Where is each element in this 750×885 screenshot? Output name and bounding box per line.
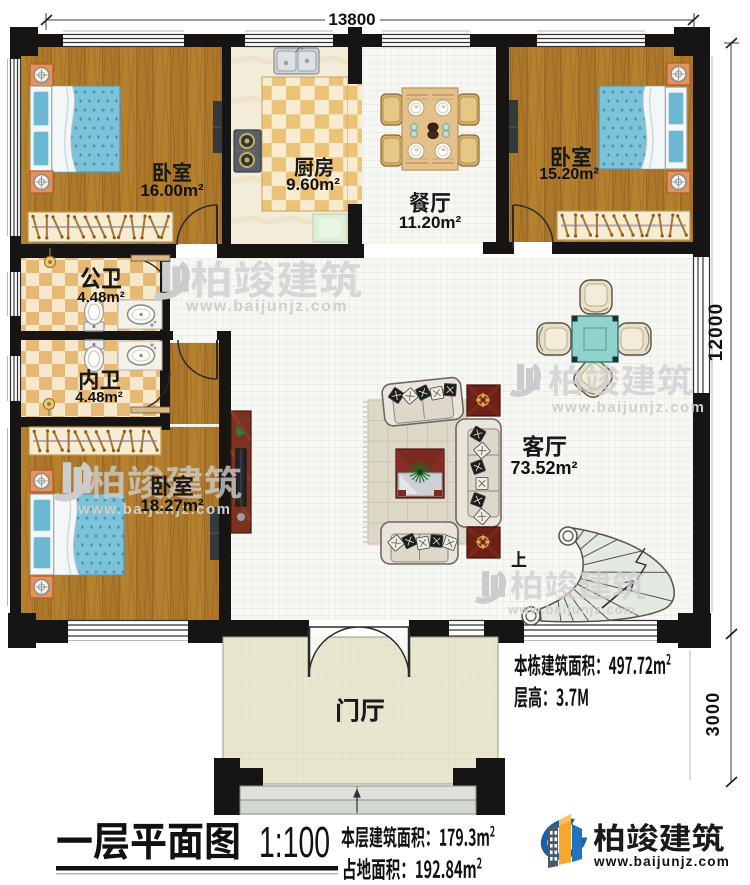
svg-text:3000: 3000 xyxy=(703,692,723,737)
svg-text:www.baijunjz.com: www.baijunjz.com xyxy=(593,853,730,869)
svg-text:18.27m²: 18.27m² xyxy=(140,496,204,515)
svg-text:15.20m²: 15.20m² xyxy=(539,166,599,183)
svg-text:4.48m²: 4.48m² xyxy=(77,289,125,306)
svg-text:www.baijunjz.com: www.baijunjz.com xyxy=(551,399,705,416)
svg-text:www.baijunjz.com: www.baijunjz.com xyxy=(185,298,348,315)
svg-text:9.60m²: 9.60m² xyxy=(286,175,340,194)
svg-text:73.52m²: 73.52m² xyxy=(510,458,577,478)
svg-text:16.00m²: 16.00m² xyxy=(140,181,204,200)
svg-text:11.20m²: 11.20m² xyxy=(399,213,462,232)
svg-text:www.baijunjz.com: www.baijunjz.com xyxy=(507,602,636,617)
svg-text:12000: 12000 xyxy=(706,303,727,362)
svg-text:4.48m²: 4.48m² xyxy=(75,389,123,406)
svg-text:13800: 13800 xyxy=(328,10,375,29)
svg-text:1:100: 1:100 xyxy=(259,818,330,867)
